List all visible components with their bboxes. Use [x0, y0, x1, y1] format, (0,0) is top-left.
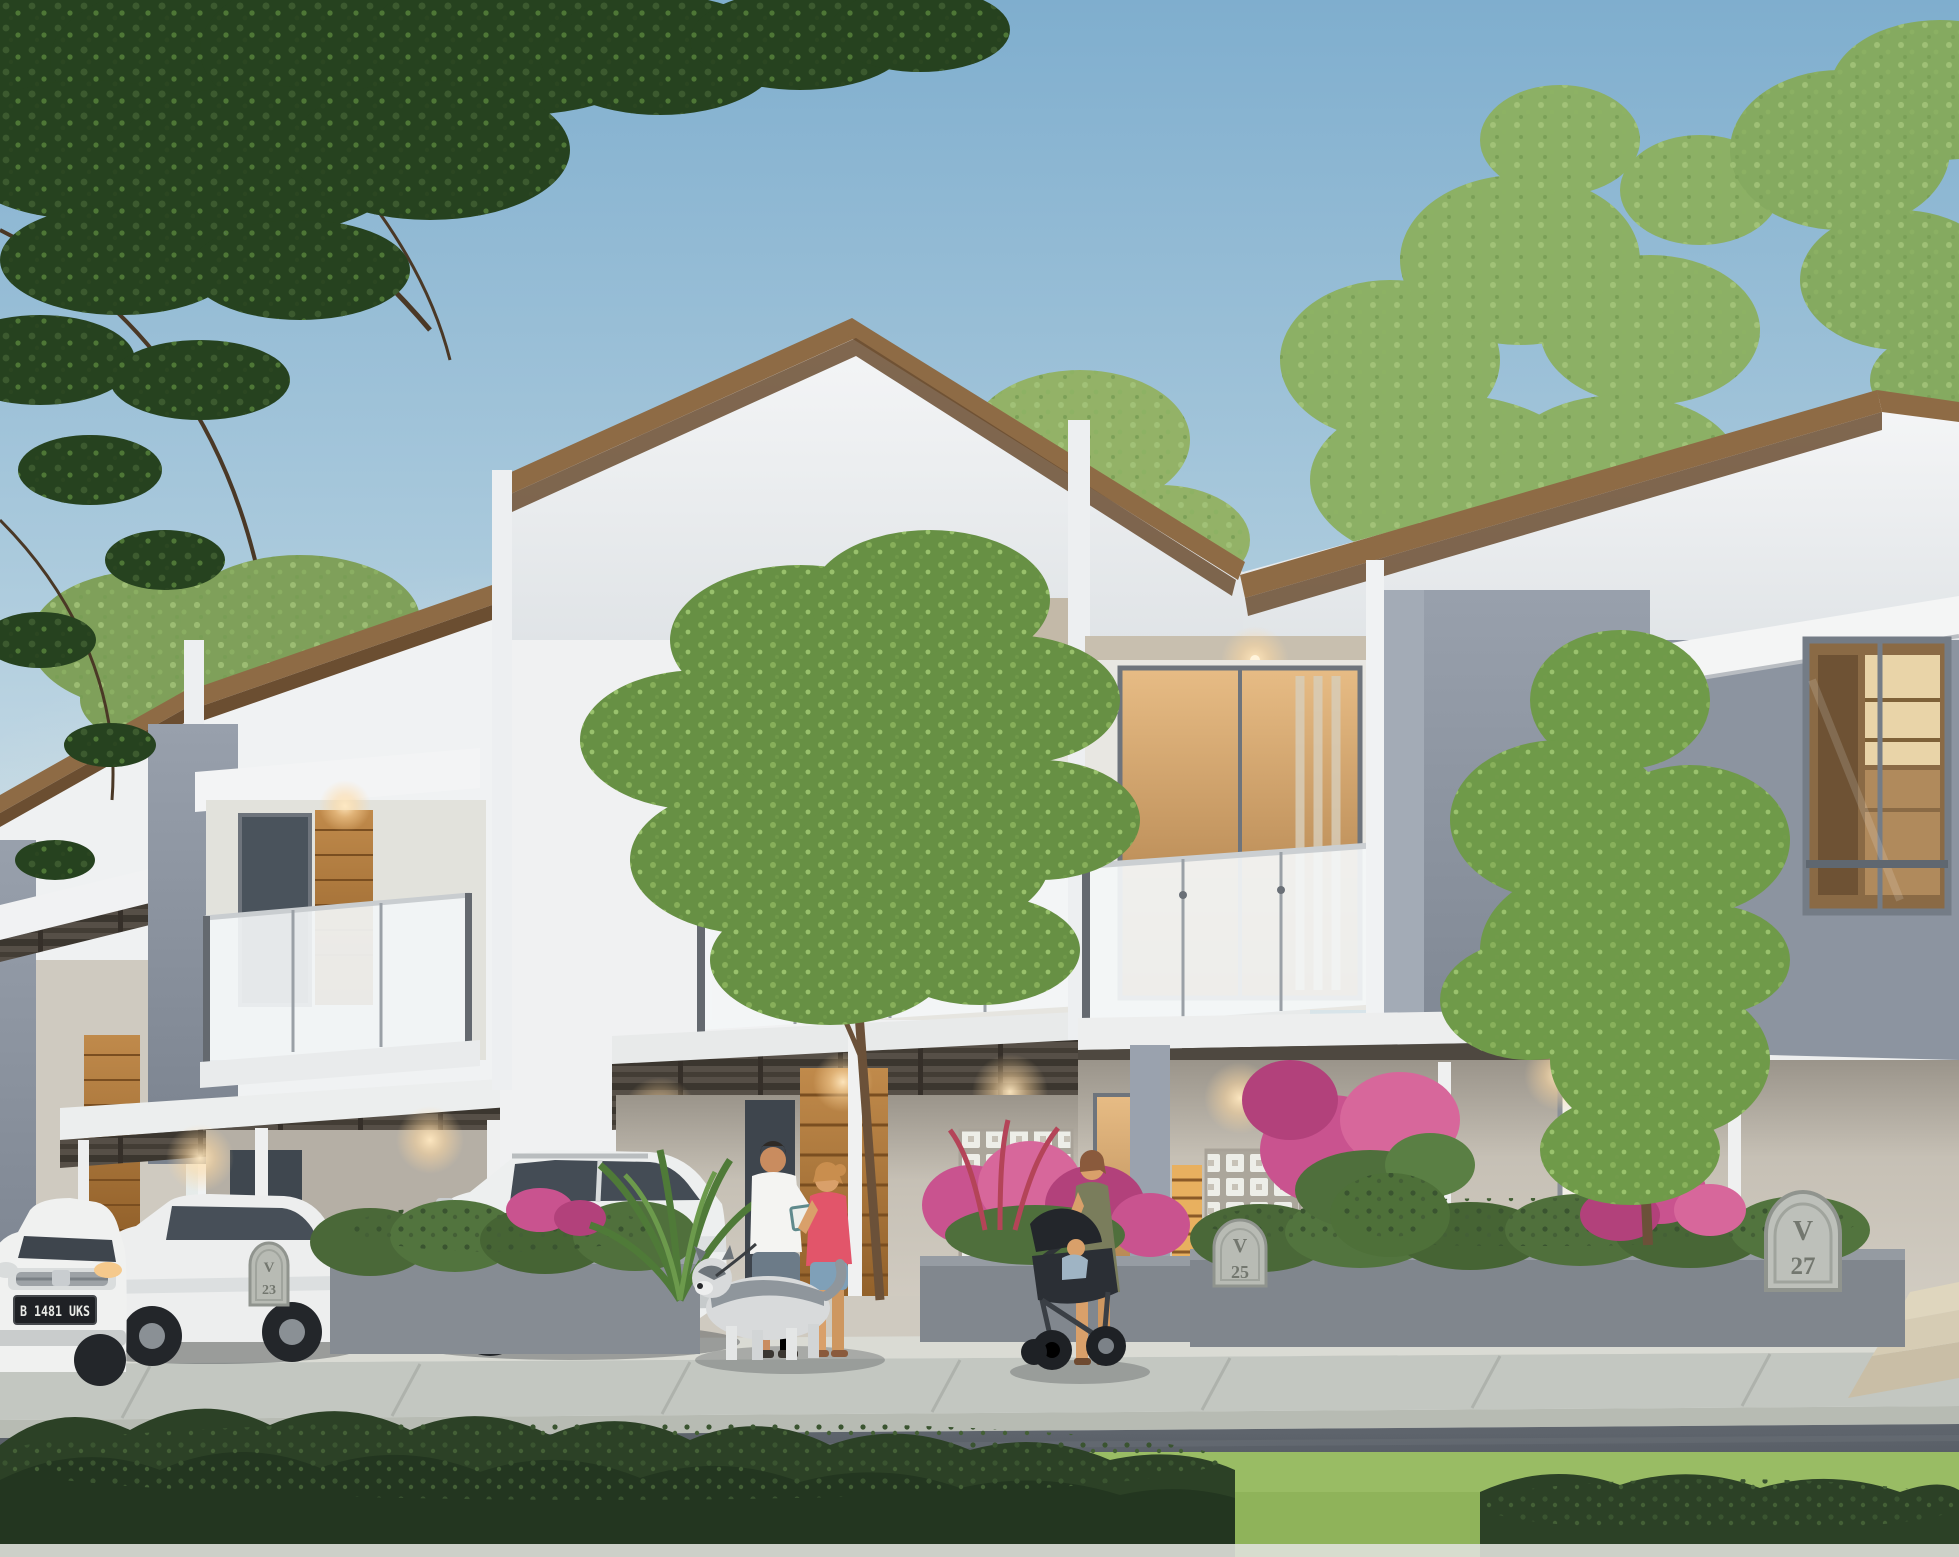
unit-d-white-fin [1366, 560, 1384, 1030]
plaque-v25-letter: V [1233, 1235, 1248, 1257]
baby-body [1062, 1254, 1088, 1280]
headlight [94, 1262, 122, 1278]
plaque-v23-letter: V [264, 1260, 275, 1276]
license-plate: B 1481 UKS [14, 1296, 96, 1324]
bottom-edge-strip [0, 1544, 1959, 1557]
bush-texture [1480, 1479, 1959, 1531]
mpv-grille [16, 1270, 108, 1286]
plaque-v23: V 23 [250, 1243, 288, 1305]
plaque-v27: V 27 [1766, 1192, 1840, 1290]
baby-head [1067, 1239, 1085, 1257]
unit-b-porch-light-glow [319, 780, 371, 832]
wheel [74, 1334, 126, 1386]
unit-c-left-fin [492, 470, 512, 1090]
plaque-v25-number: 25 [1231, 1262, 1249, 1282]
husky-nose [697, 1283, 703, 1289]
unit-b-carport-light-2 [396, 1106, 464, 1174]
plaque-v23-number: 23 [262, 1283, 276, 1298]
unit-b-carport-light-1 [166, 1124, 234, 1192]
plaque-v27-letter: V [1793, 1216, 1813, 1247]
unit-d-tall-window [1806, 640, 1948, 912]
unit-b-balcony-railing [203, 893, 472, 1064]
bush-texture [0, 1420, 1220, 1500]
plaque-v27-number: 27 [1791, 1253, 1816, 1280]
rendering-canvas: B 1481 UKS [0, 0, 1959, 1557]
plaque-v25: V 25 [1214, 1220, 1266, 1286]
unit-d-balcony-railing [1082, 843, 1380, 1028]
license-plate-text: B 1481 UKS [20, 1304, 90, 1320]
rounded-topiary-bush [1330, 1173, 1450, 1257]
